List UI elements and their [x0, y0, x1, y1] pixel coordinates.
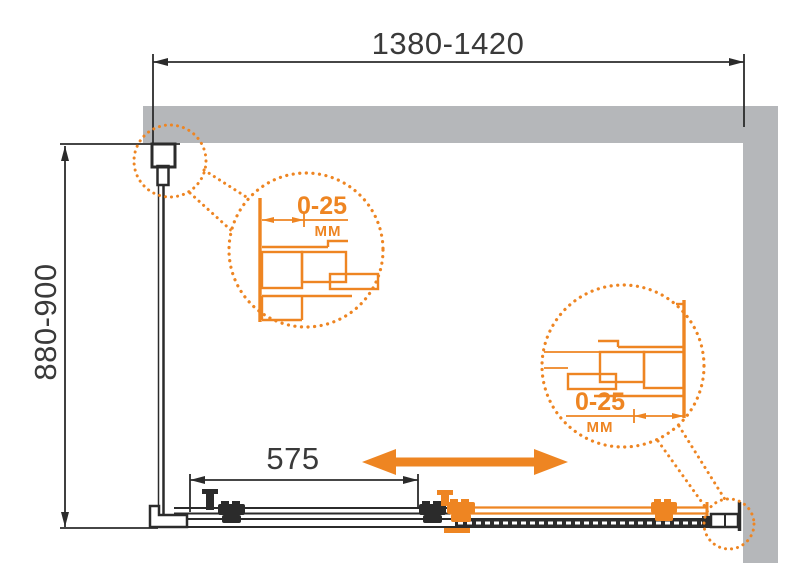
- wall-profile-inner: [158, 166, 169, 185]
- wall-top: [143, 106, 778, 143]
- roller-carriage: [447, 502, 475, 514]
- roller-wheel: [222, 515, 241, 523]
- detail-1-unit-label: MM: [315, 223, 342, 240]
- wall-profile-outer: [152, 144, 175, 167]
- detail-2-unit-label: MM: [587, 419, 614, 436]
- bottom-guide: [444, 528, 470, 533]
- roller-wheel: [655, 513, 673, 521]
- magnifier-cone-line: [679, 426, 726, 501]
- corner-bracket: [150, 506, 187, 527]
- magnifier-cone-line: [204, 170, 251, 200]
- dimension-drawing: 1380-1420 880-900 575 0-25 MM 0-25 MM: [0, 0, 800, 576]
- roller-carriage: [218, 504, 245, 515]
- roller-carriage: [651, 502, 677, 513]
- detail-1-range-label: 0-25: [297, 192, 347, 221]
- detail-callout-1: [134, 125, 383, 327]
- roller-wheel: [423, 515, 442, 523]
- roller-wheel: [451, 514, 471, 522]
- arrowhead-left-icon: [153, 58, 168, 66]
- left-dimension: [60, 144, 180, 528]
- detail-callout-2: [542, 285, 754, 549]
- drawing-canvas: [0, 0, 800, 576]
- height-dimension-label: 880-900: [28, 263, 64, 380]
- detail-2-range-label: 0-25: [575, 388, 625, 417]
- arrowhead-up-icon: [61, 146, 69, 161]
- door-width-dimension-label: 575: [266, 441, 319, 477]
- magnifier-cone-line: [190, 193, 233, 232]
- detail-circle: [542, 285, 704, 447]
- slide-direction-arrow-icon: [362, 449, 568, 475]
- side-panel: [152, 144, 175, 516]
- wall-right: [743, 106, 778, 563]
- door-knob-stem: [206, 493, 214, 510]
- arrowhead-right-icon: [403, 476, 418, 484]
- arrowhead-left-icon: [190, 476, 205, 484]
- arrowhead-down-icon: [61, 512, 69, 527]
- width-dimension-label: 1380-1420: [372, 26, 525, 62]
- arrowhead-right-icon: [729, 58, 744, 66]
- magnifier-cone-line: [658, 441, 706, 508]
